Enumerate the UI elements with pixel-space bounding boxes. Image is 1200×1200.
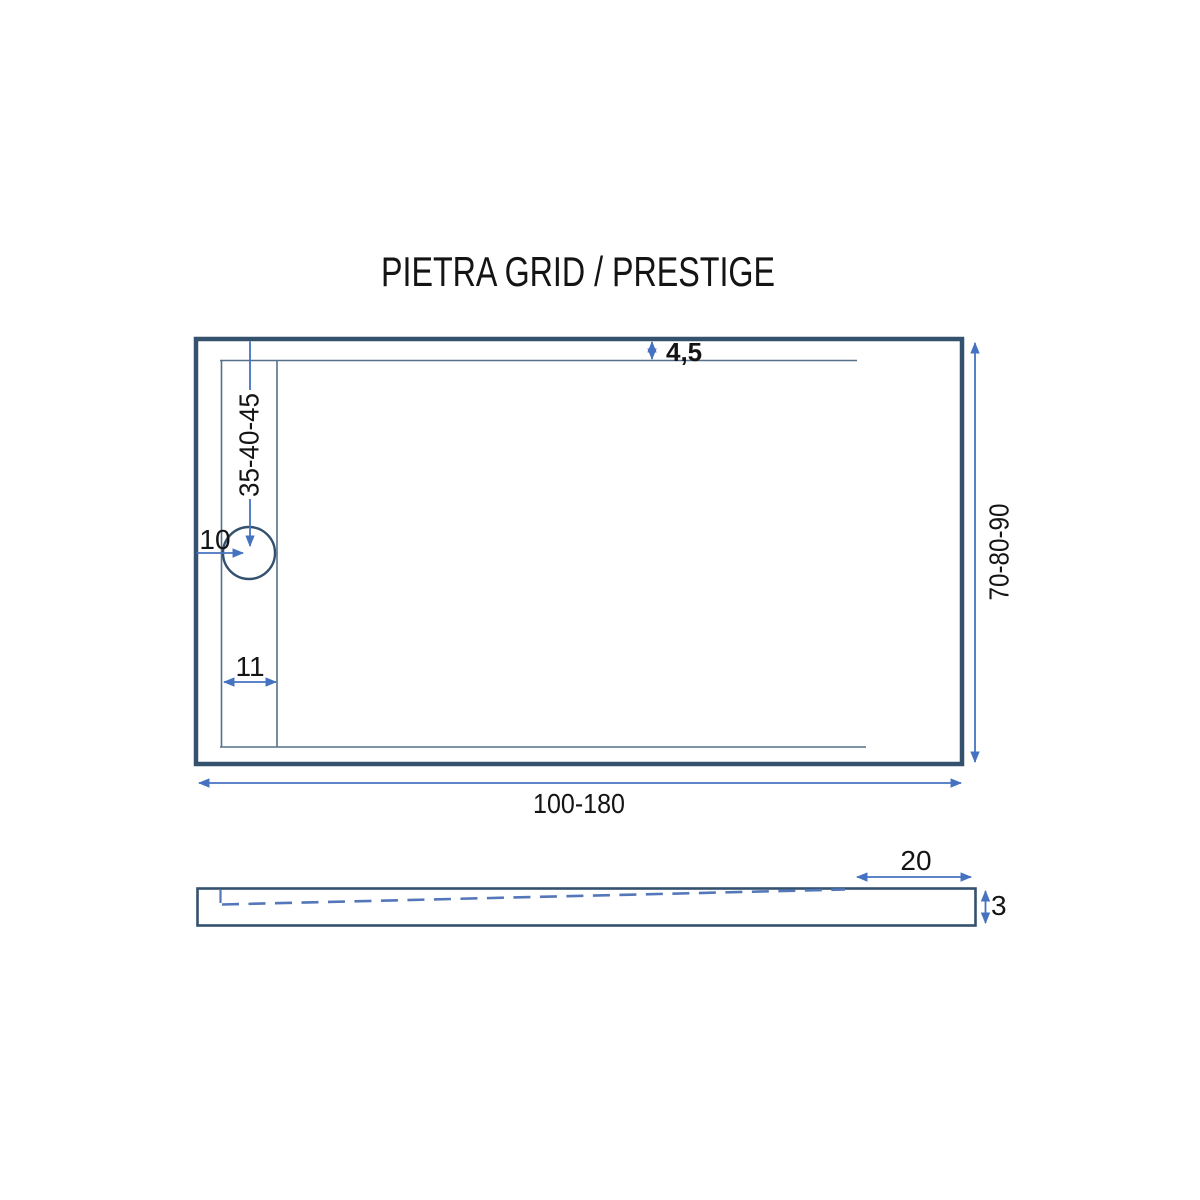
- technical-drawing-page: PIETRA GRID / PRESTIGE 4,5 35-40-45 10 1…: [0, 0, 1200, 1200]
- dim-label-channel-width: 11: [235, 651, 264, 682]
- dim-label-drain-hole: 10: [199, 524, 230, 555]
- dim-label-flat-end: 20: [900, 845, 931, 876]
- dim-label-width-range: 100-180: [533, 788, 625, 819]
- plan-outer-rect: [196, 339, 962, 764]
- shower-tray-drawing: PIETRA GRID / PRESTIGE 4,5 35-40-45 10 1…: [0, 0, 1200, 1200]
- dim-label-drain-offset: 35-40-45: [234, 393, 265, 497]
- drawing-title: PIETRA GRID / PRESTIGE: [381, 248, 775, 295]
- dim-label-top-edge-gap: 4,5: [666, 337, 702, 367]
- side-slope-dashed-line: [222, 890, 845, 905]
- side-profile-rect: [198, 889, 976, 926]
- dim-label-thickness: 3: [991, 890, 1007, 921]
- dim-label-height-range: 70-80-90: [984, 504, 1015, 601]
